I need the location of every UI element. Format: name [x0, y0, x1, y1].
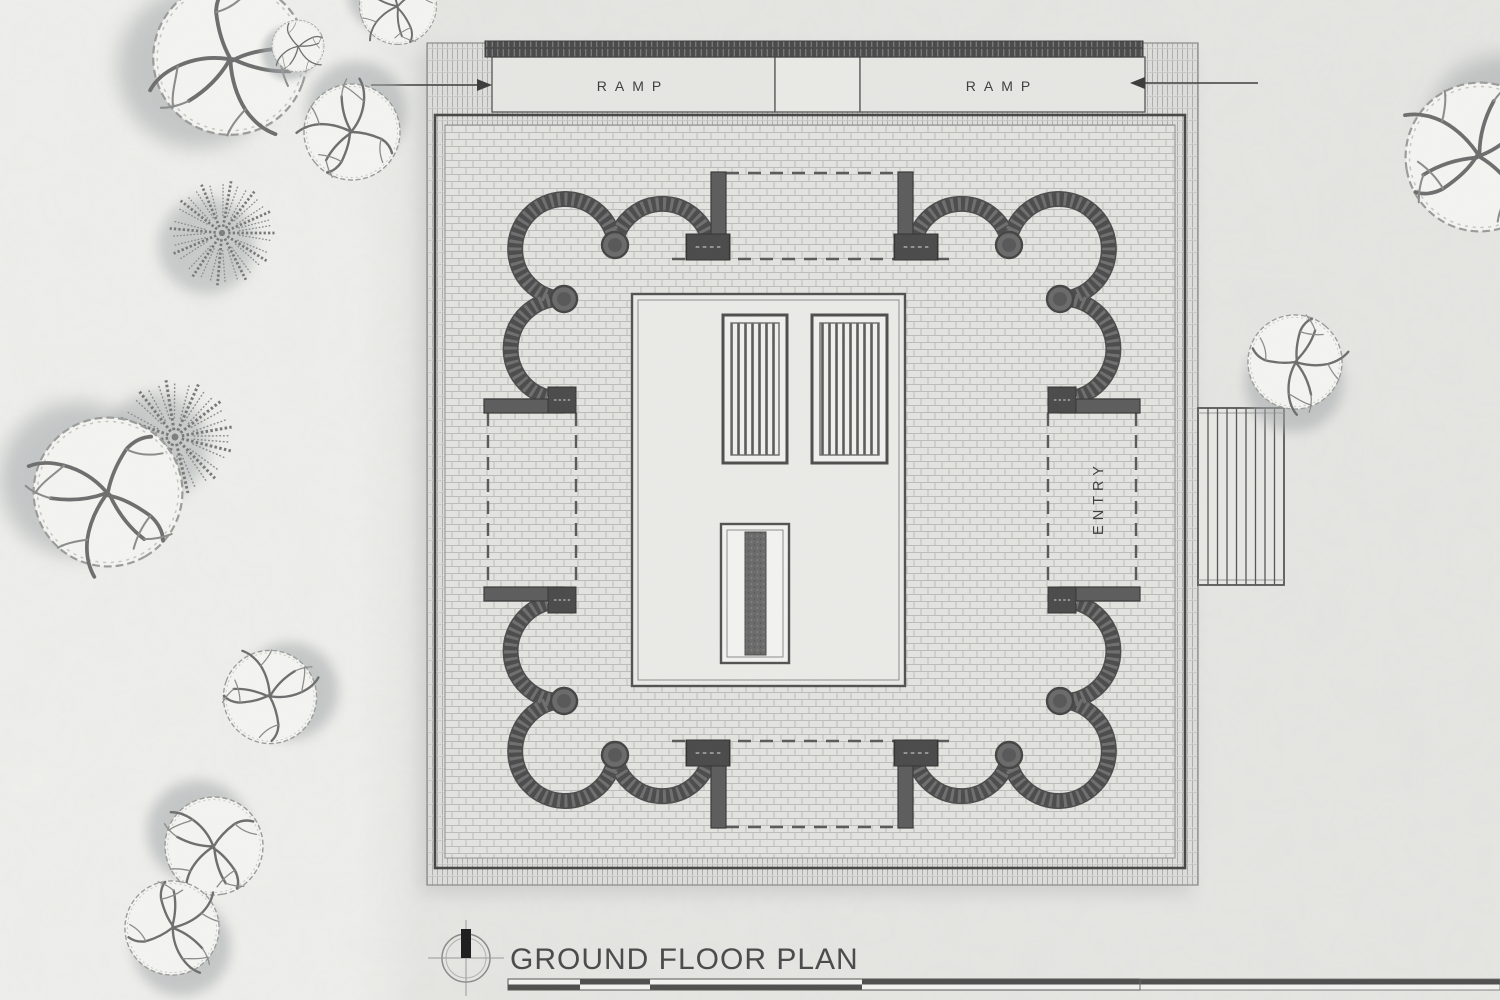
paper-grain-overlay: [0, 0, 1500, 1000]
ground-floor-plan-drawing: RAMP RAMP: [0, 0, 1500, 1000]
site-plan-canvas: RAMP RAMP: [0, 0, 1500, 1000]
